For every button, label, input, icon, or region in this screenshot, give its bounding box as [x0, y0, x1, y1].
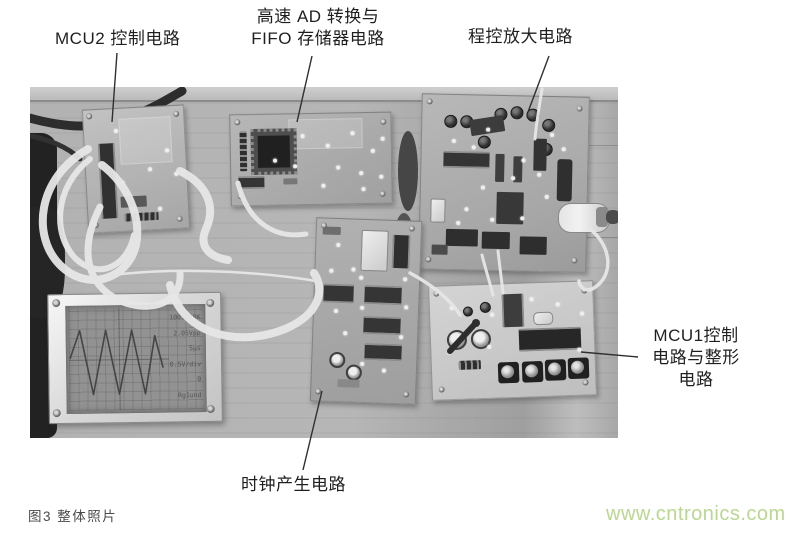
push-button [545, 359, 567, 381]
solder-dot [343, 331, 347, 335]
label-mcu1-line1: MCU1控制 [637, 325, 755, 347]
chip-icon [482, 232, 510, 250]
screw-icon [425, 256, 431, 262]
label-ad-fifo-line1: 高速 AD 转换与 [230, 6, 406, 28]
screw-icon [177, 216, 183, 222]
solder-dot [490, 218, 494, 222]
screw-icon [206, 299, 214, 307]
capacitor-icon [510, 106, 523, 119]
dip-chip-icon [323, 284, 354, 304]
component-icon [557, 159, 573, 201]
dip-chip-icon [98, 143, 119, 219]
board-amp [418, 93, 590, 272]
solder-dot [511, 176, 515, 180]
solder-dot [403, 277, 407, 281]
crystal-icon [533, 312, 553, 326]
solder-dot [359, 276, 363, 280]
lcd-readout-line: 0 [163, 372, 201, 388]
solder-dot [174, 172, 178, 176]
screw-icon [238, 193, 244, 199]
label-amp-circuit: 程控放大电路 [468, 26, 573, 48]
label-clock-circuit: 时钟产生电路 [241, 474, 346, 496]
solder-dot [487, 345, 491, 349]
lcd-readout-line: 5μs [163, 341, 201, 357]
solder-dot [537, 173, 541, 177]
solder-dot [336, 165, 340, 169]
chip-icon [520, 236, 547, 255]
dip-chip-icon [443, 151, 489, 169]
capacitor-icon [346, 364, 363, 381]
pin-header-icon [240, 131, 248, 171]
solder-dot [521, 158, 525, 162]
solder-dot [361, 187, 365, 191]
lcd-waveform [66, 306, 171, 411]
dip-chip-icon [364, 343, 402, 361]
solder-dot [464, 207, 468, 211]
solder-dot [371, 149, 375, 153]
label-ad-fifo-circuit: 高速 AD 转换与 FIFO 存储器电路 [230, 6, 406, 50]
capacitor-icon [478, 135, 491, 148]
label-mcu1-line2: 电路与整形 [637, 347, 755, 369]
screw-icon [433, 291, 439, 297]
solder-dot [556, 302, 560, 306]
dip-chip-icon [363, 316, 401, 335]
capacitor-icon [526, 108, 539, 121]
screw-icon [577, 106, 583, 112]
solder-dot [351, 131, 355, 135]
board-mcu1 [428, 280, 597, 401]
screw-icon [409, 225, 415, 231]
solder-dot [452, 139, 456, 143]
lcd-readout-line: 2.05Vpp [163, 326, 201, 342]
solder-dot [447, 350, 451, 354]
pin-header-icon [124, 212, 158, 222]
solder-dot [301, 134, 305, 138]
solder-pad [577, 348, 581, 352]
solder-dot [450, 306, 454, 310]
solder-dot [520, 216, 524, 220]
solder-dot [580, 311, 584, 315]
solder-dot [545, 195, 549, 199]
solder-dot [148, 167, 152, 171]
label-mcu2-circuit: MCU2 控制电路 [55, 28, 180, 50]
solder-dot [404, 305, 408, 309]
solder-dot [530, 297, 534, 301]
connector-cable [606, 210, 618, 224]
screw-icon [234, 119, 240, 125]
solder-dot [360, 362, 364, 366]
solder-dot [359, 171, 363, 175]
push-button [522, 361, 544, 383]
dip-chip-icon [501, 294, 524, 328]
label-ad-fifo-line2: FIFO 存储器电路 [230, 28, 406, 50]
solder-dot [321, 184, 325, 188]
small-chip-icon [120, 195, 147, 207]
small-chip-icon [238, 176, 264, 189]
screw-icon [581, 287, 587, 293]
dip40-chip-icon [519, 327, 582, 352]
lcd-module: 100.000K 2.05Vpp 5μs 0.5V/div 0 Rg1und [47, 292, 223, 424]
screw-icon [173, 111, 179, 117]
screw-icon [571, 257, 577, 263]
component-icon [495, 154, 505, 182]
solder-dot [114, 129, 118, 133]
small-chip-icon [469, 115, 505, 136]
screw-icon [439, 386, 445, 392]
screw-icon [52, 299, 60, 307]
capacitor-icon [542, 119, 555, 132]
component-icon [533, 139, 547, 171]
screw-icon [207, 405, 215, 413]
white-component [430, 198, 445, 222]
dip-chip-icon [364, 285, 402, 305]
small-chip-icon [431, 244, 447, 254]
lcd-readout-line: 0.5V/div [163, 357, 201, 373]
screw-icon [403, 391, 409, 397]
solder-dot [481, 186, 485, 190]
solder-dot [329, 269, 333, 273]
solder-dot [158, 207, 162, 211]
screw-icon [380, 119, 386, 125]
solder-dot [456, 221, 460, 225]
solder-dot [326, 144, 330, 148]
pin-header-icon [459, 360, 481, 370]
lcd-readout-line: Rg1und [163, 388, 201, 404]
component-icon [337, 379, 359, 388]
board-reflection [118, 116, 172, 165]
solder-dot [121, 181, 125, 185]
screw-icon [53, 409, 61, 417]
solder-dot [382, 369, 386, 373]
screw-icon [86, 113, 92, 119]
push-button [498, 362, 520, 384]
screw-icon [582, 379, 588, 385]
solder-dot [293, 164, 297, 168]
solder-dot [360, 306, 364, 310]
solder-dot [550, 133, 554, 137]
transistor-icon [480, 302, 491, 313]
solder-dot [379, 175, 383, 179]
label-mcu1-line3: 电路 [637, 369, 755, 391]
circuit-photo: 100.000K 2.05Vpp 5μs 0.5V/div 0 Rg1und [30, 87, 618, 438]
solder-dot [486, 128, 490, 132]
figure-caption: 图3 整体照片 [28, 505, 117, 525]
site-watermark: www.cntronics.com [606, 503, 786, 526]
chip-icon [446, 229, 478, 247]
capacitor-icon [444, 115, 457, 128]
solder-dot [273, 159, 277, 163]
screw-icon [315, 388, 321, 394]
transistor-icon [463, 306, 473, 316]
solder-dot [472, 145, 476, 149]
lcd-readout-line: 100.000K [162, 310, 200, 326]
solder-dot [351, 267, 355, 271]
label-mcu1-circuit: MCU1控制 电路与整形 电路 [637, 325, 755, 391]
board-ad-fifo [229, 112, 393, 207]
lcd-readout: 100.000K 2.05Vpp 5μs 0.5V/div 0 Rg1und [162, 310, 201, 404]
solder-dot [334, 309, 338, 313]
board-clock [310, 217, 422, 405]
screw-icon [93, 222, 99, 228]
oscillator-module [360, 230, 388, 272]
plcc-chip-icon [250, 128, 297, 175]
article-figure: 100.000K 2.05Vpp 5μs 0.5V/div 0 Rg1und [0, 0, 794, 535]
capacitor-icon [447, 330, 468, 351]
solder-dot [381, 137, 385, 141]
capacitor-icon [329, 352, 346, 369]
board-mcu2 [82, 104, 190, 233]
solder-dot [336, 243, 340, 247]
resistor-icon [283, 178, 297, 184]
screw-icon [380, 191, 386, 197]
push-button [568, 357, 590, 379]
solder-dot [490, 313, 494, 317]
solder-dot [399, 335, 403, 339]
solder-dot [562, 147, 566, 151]
lcd-screen: 100.000K 2.05Vpp 5μs 0.5V/div 0 Rg1und [65, 304, 206, 414]
dip-chip-icon [392, 235, 411, 269]
screw-icon [427, 98, 433, 104]
